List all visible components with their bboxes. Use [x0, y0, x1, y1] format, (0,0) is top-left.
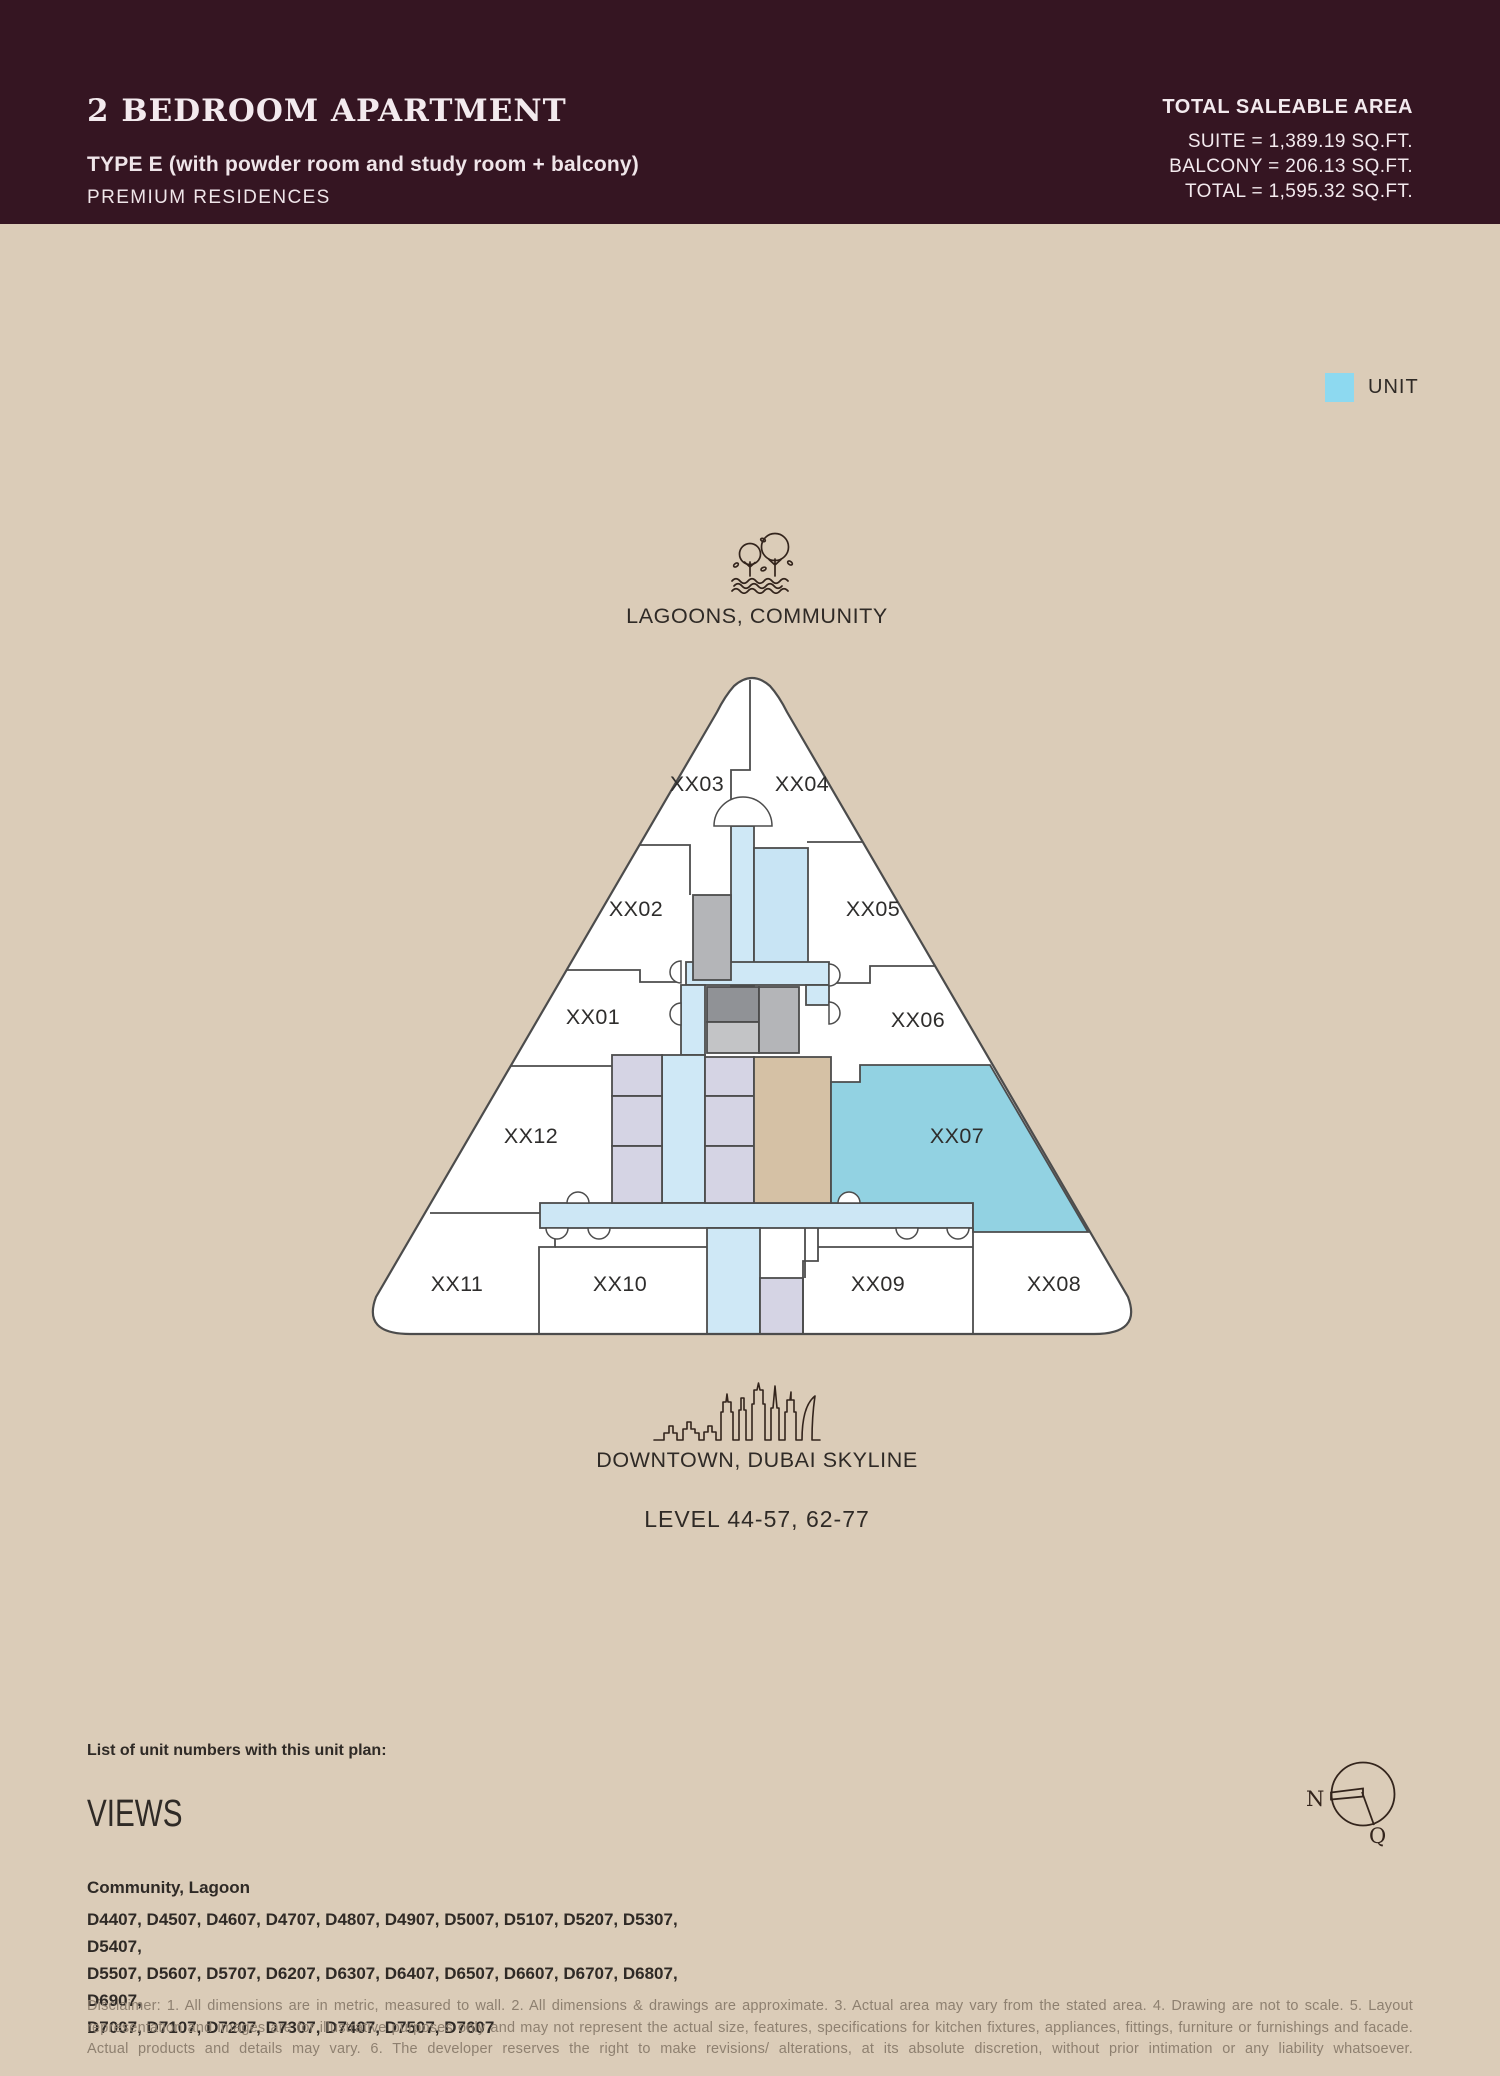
unit-label-xx05: XX05 — [846, 897, 900, 921]
area-balcony: BALCONY = 206.13 SQ.FT. — [1162, 154, 1413, 179]
brand-label: PREMIUM RESIDENCES — [87, 187, 331, 209]
disclaimer-text: Disclaimer: 1. All dimensions are in met… — [87, 1996, 1413, 2061]
page-title: 2 BEDROOM APARTMENT — [87, 93, 567, 129]
area-total: TOTAL = 1,595.32 SQ.FT. — [1162, 179, 1413, 204]
lagoon-trees-icon — [725, 532, 797, 599]
unit-label-xx08: XX08 — [1027, 1272, 1081, 1296]
unit-label-xx02: XX02 — [609, 897, 663, 921]
unit-list-caption: List of unit numbers with this unit plan… — [87, 1742, 387, 1760]
views-value: Community, Lagoon — [87, 1878, 250, 1898]
header-band: 2 BEDROOM APARTMENT TYPE E (with powder … — [0, 0, 1500, 224]
unit-label-xx11: XX11 — [431, 1272, 484, 1296]
center-tan-block — [754, 1057, 831, 1203]
unit-label-xx01: XX01 — [566, 1005, 620, 1029]
saleable-area-block: TOTAL SALEABLE AREA SUITE = 1,389.19 SQ.… — [1162, 96, 1413, 204]
unit-legend: UNIT — [1325, 373, 1419, 402]
unit-label-xx10: XX10 — [593, 1272, 647, 1296]
compass-q-label: Q — [1369, 1824, 1386, 1848]
unit-legend-label: UNIT — [1368, 376, 1419, 399]
floor-plate-diagram: XX01 XX02 XX03 XX04 XX05 XX06 XX07 XX08 … — [340, 650, 1190, 1355]
area-title: TOTAL SALEABLE AREA — [1162, 96, 1413, 119]
north-compass-icon: N Q — [1300, 1755, 1415, 1860]
unit-label-xx04: XX04 — [775, 772, 829, 796]
unit-label-xx06: XX06 — [891, 1008, 945, 1032]
unit-label-xx09: XX09 — [851, 1272, 905, 1296]
dubai-skyline-icon — [652, 1382, 864, 1449]
unit-label-xx12: XX12 — [504, 1124, 558, 1148]
compass-north-label: N — [1306, 1787, 1324, 1811]
lagoons-community-label: LAGOONS, COMMUNITY — [0, 604, 1500, 629]
unit-label-xx07: XX07 — [930, 1124, 984, 1148]
unit-label-xx03: XX03 — [670, 772, 724, 796]
floorplan-page: 2 BEDROOM APARTMENT TYPE E (with powder … — [0, 0, 1500, 2076]
unit-type-subtitle: TYPE E (with powder room and study room … — [87, 153, 639, 177]
views-heading: VIEWS — [87, 1793, 183, 1836]
area-suite: SUITE = 1,389.19 SQ.FT. — [1162, 129, 1413, 154]
downtown-skyline-label: DOWNTOWN, DUBAI SKYLINE — [0, 1448, 1500, 1473]
unit-swatch-icon — [1325, 373, 1354, 402]
level-range-label: LEVEL 44-57, 62-77 — [0, 1506, 1500, 1533]
